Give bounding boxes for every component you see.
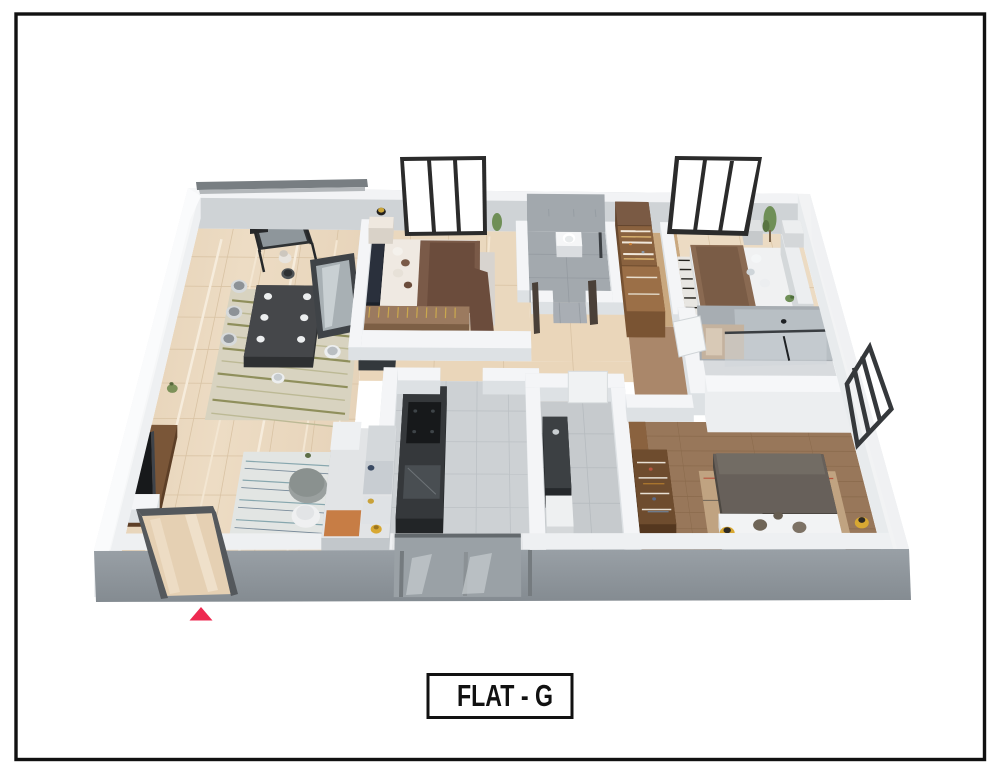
svg-text:FLAT - G: FLAT - G	[457, 678, 553, 713]
